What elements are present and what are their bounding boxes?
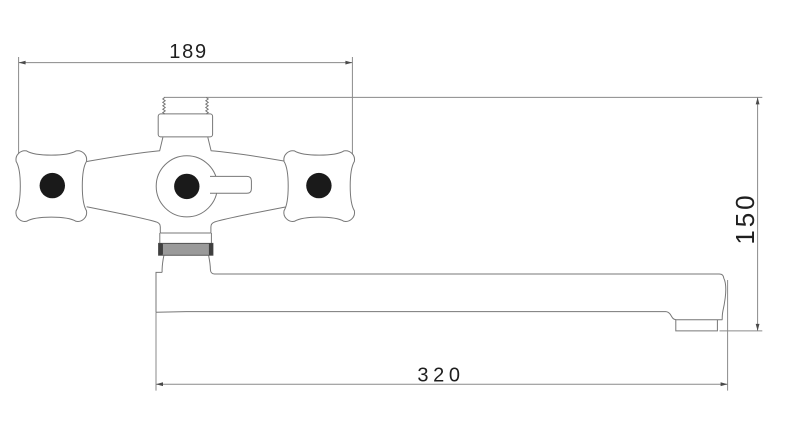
svg-text:320: 320 — [417, 365, 464, 387]
svg-text:150: 150 — [730, 193, 760, 245]
svg-text:189: 189 — [169, 41, 208, 63]
